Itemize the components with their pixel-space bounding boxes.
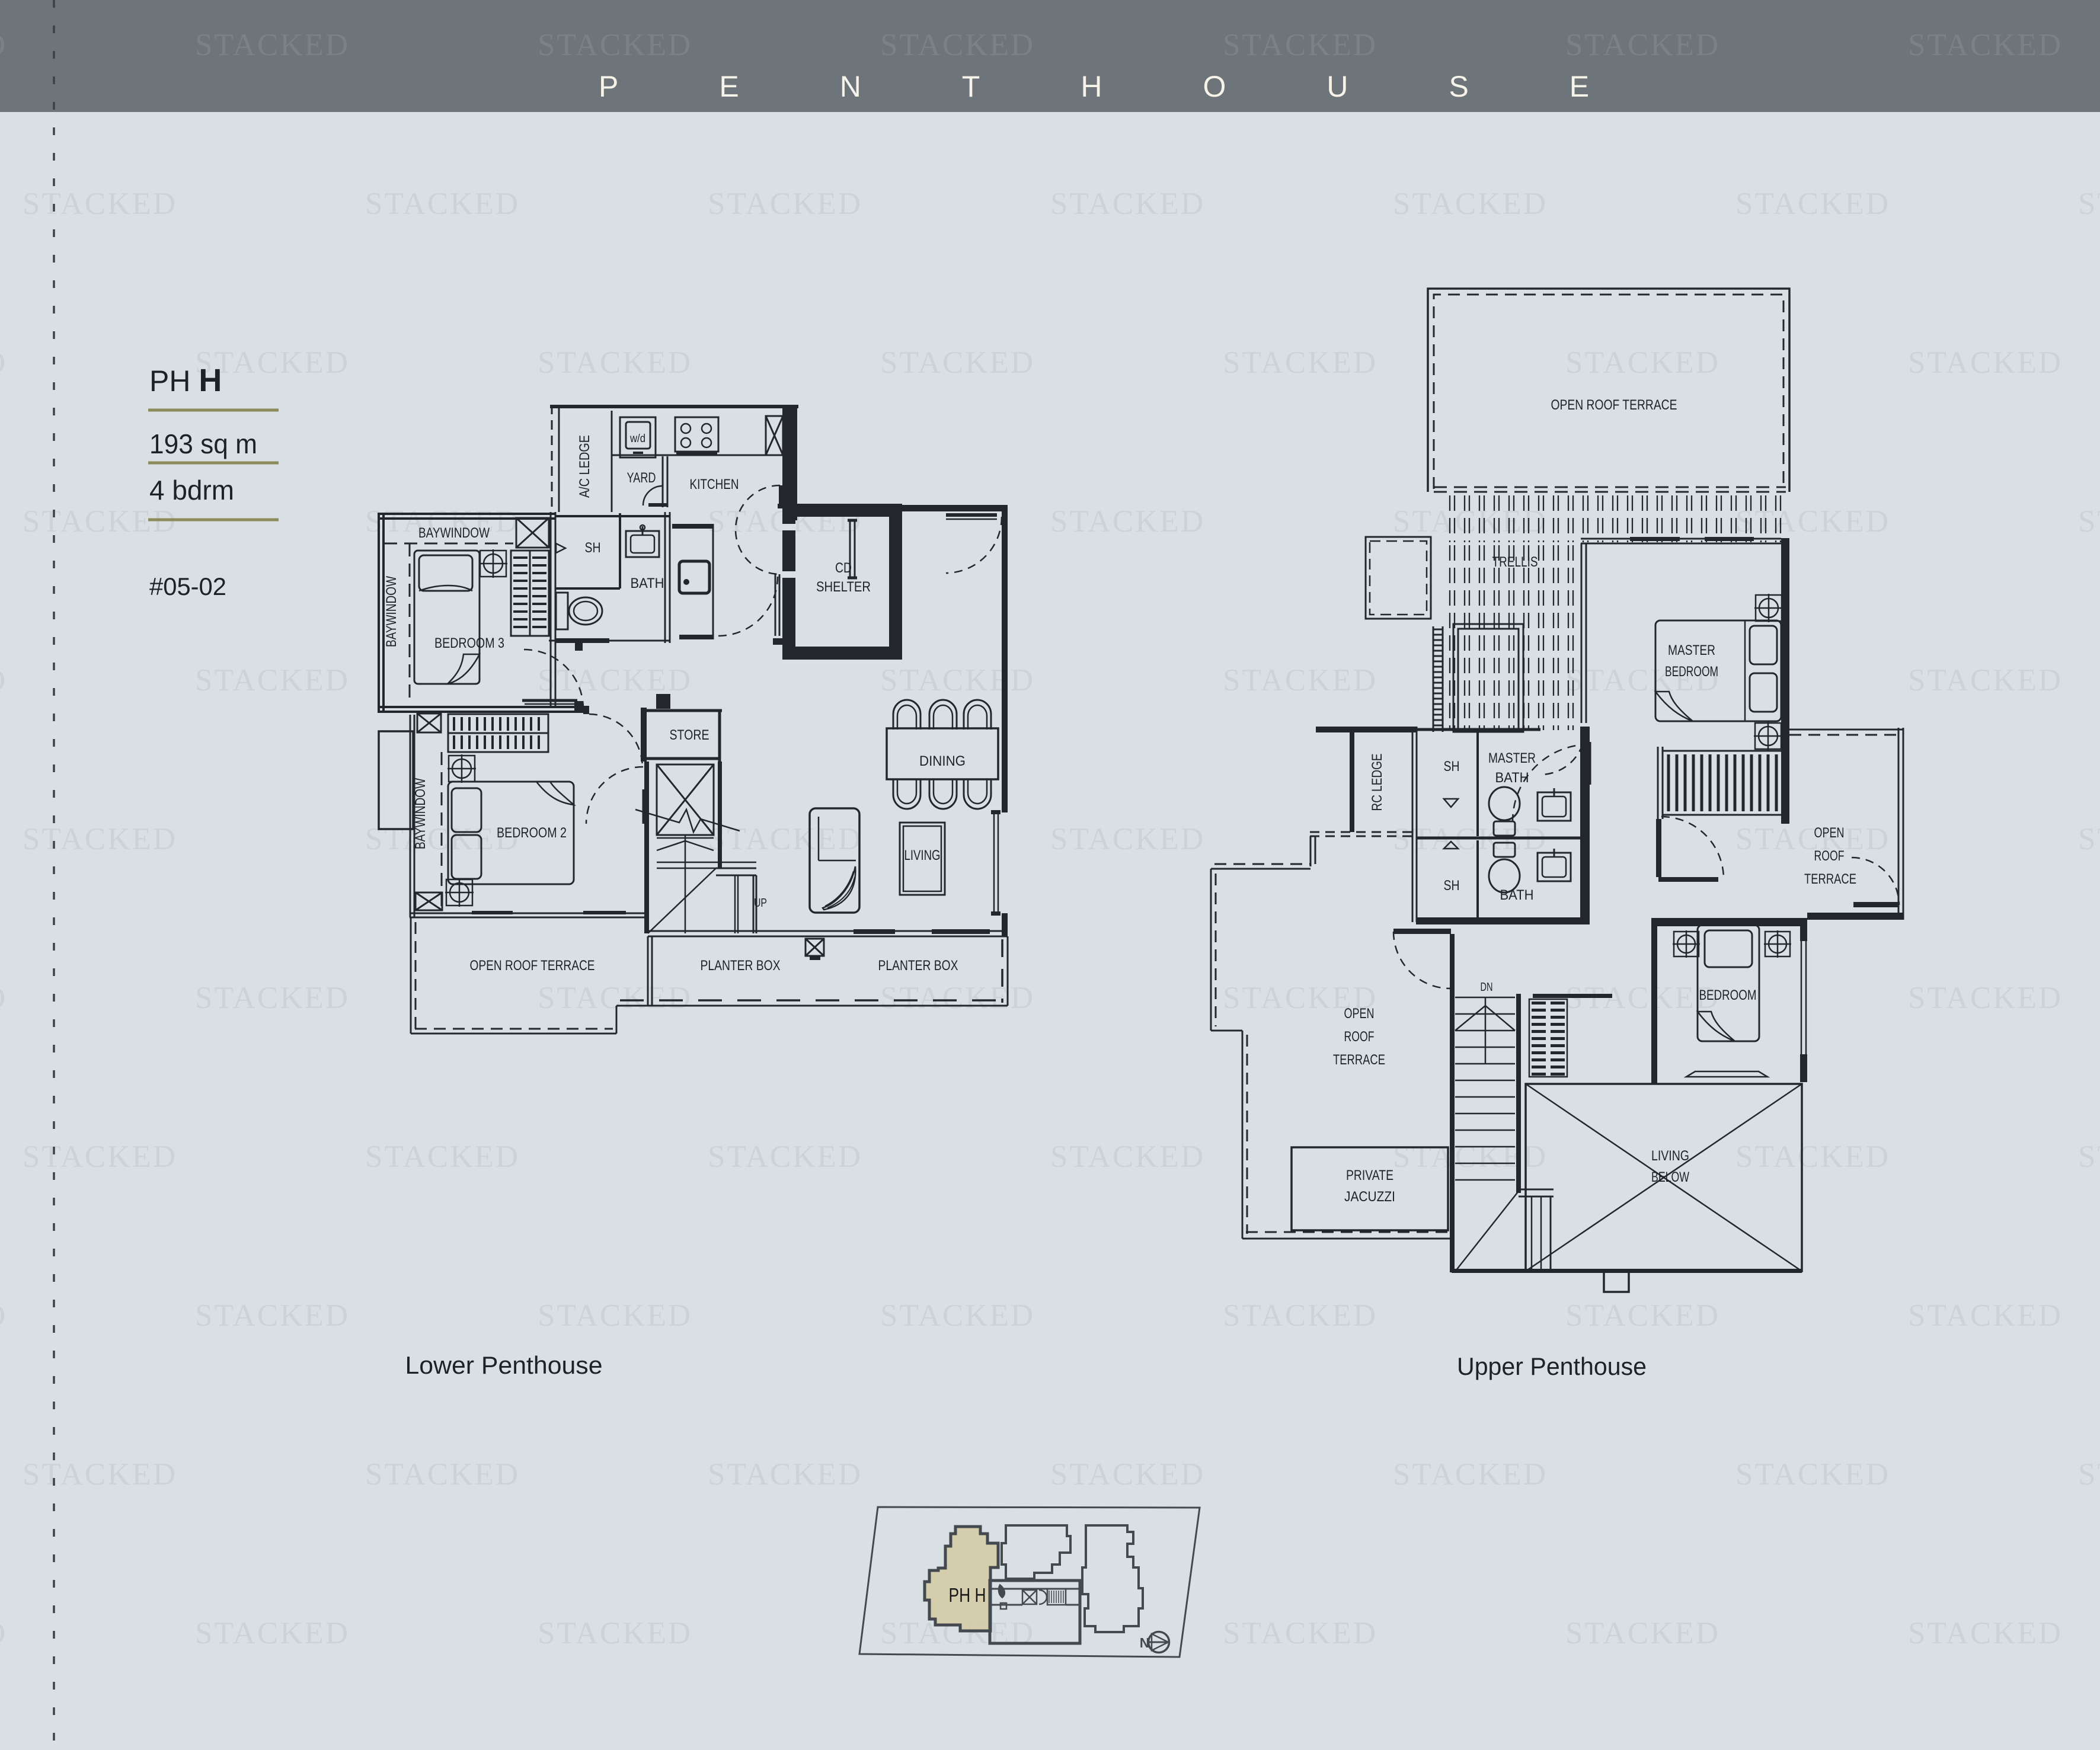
svg-text:PRIVATE: PRIVATE <box>1346 1167 1393 1183</box>
svg-text:A/C LEDGE: A/C LEDGE <box>577 435 593 498</box>
svg-text:SH: SH <box>585 540 601 556</box>
svg-text:STACKED: STACKED <box>1908 981 2063 1015</box>
svg-text:ROOF: ROOF <box>1344 1029 1375 1045</box>
svg-text:193 sq m: 193 sq m <box>149 428 257 459</box>
svg-text:STACKED: STACKED <box>1735 187 1890 221</box>
svg-text:LIVING: LIVING <box>1651 1148 1689 1164</box>
svg-text:STACKED: STACKED <box>1735 1457 1890 1492</box>
svg-text:PLANTER BOX: PLANTER BOX <box>701 958 781 974</box>
svg-text:STACKED: STACKED <box>1908 1616 2063 1650</box>
svg-text:MASTER: MASTER <box>1488 750 1536 766</box>
svg-text:STACKED: STACKED <box>1223 345 1377 380</box>
svg-text:STACKED: STACKED <box>708 187 862 221</box>
svg-text:OPEN: OPEN <box>1344 1006 1375 1022</box>
svg-text:MASTER: MASTER <box>1668 642 1715 658</box>
svg-text:STACKED: STACKED <box>0 663 7 698</box>
svg-text:STACKED: STACKED <box>365 187 520 221</box>
svg-text:STACKED: STACKED <box>538 1616 692 1650</box>
svg-text:STACKED: STACKED <box>880 1298 1035 1333</box>
svg-text:BATH: BATH <box>1495 770 1529 786</box>
svg-text:STACKED: STACKED <box>195 1298 350 1333</box>
svg-text:STACKED: STACKED <box>538 981 692 1015</box>
svg-text:KITCHEN: KITCHEN <box>690 476 739 492</box>
svg-text:STACKED: STACKED <box>708 1140 862 1174</box>
svg-text:STACKED: STACKED <box>1735 504 1890 539</box>
svg-text:SH: SH <box>1444 759 1460 775</box>
svg-text:Upper Penthouse: Upper Penthouse <box>1457 1352 1647 1380</box>
svg-text:STACKED: STACKED <box>1223 1616 1377 1650</box>
svg-text:STACKED: STACKED <box>195 28 350 62</box>
svg-text:TRELLIS: TRELLIS <box>1492 554 1538 570</box>
svg-text:N: N <box>1140 1635 1150 1650</box>
svg-text:STACKED: STACKED <box>1223 28 1377 62</box>
svg-text:STACKED: STACKED <box>365 1457 520 1492</box>
svg-text:STACKED: STACKED <box>0 981 7 1015</box>
svg-text:BAYWINDOW: BAYWINDOW <box>383 576 399 647</box>
svg-text:4 bdrm: 4 bdrm <box>149 475 234 506</box>
svg-text:BELOW: BELOW <box>1651 1169 1689 1185</box>
svg-text:STACKED: STACKED <box>0 1616 7 1650</box>
svg-text:STACKED: STACKED <box>2078 1457 2100 1492</box>
svg-text:STACKED: STACKED <box>1050 822 1205 856</box>
svg-text:STACKED: STACKED <box>195 981 350 1015</box>
svg-text:STACKED: STACKED <box>1735 1140 1890 1174</box>
svg-text:STACKED: STACKED <box>2078 1140 2100 1174</box>
svg-text:STACKED: STACKED <box>23 504 177 539</box>
svg-text:STACKED: STACKED <box>2078 187 2100 221</box>
svg-text:STACKED: STACKED <box>708 1457 862 1492</box>
svg-text:STACKED: STACKED <box>538 1298 692 1333</box>
svg-text:STACKED: STACKED <box>880 981 1035 1015</box>
svg-text:STACKED: STACKED <box>708 822 862 856</box>
svg-text:YARD: YARD <box>627 470 656 486</box>
svg-text:STACKED: STACKED <box>1050 1457 1205 1492</box>
svg-text:OPEN ROOF TERRACE: OPEN ROOF TERRACE <box>1551 397 1677 413</box>
svg-text:SH: SH <box>1444 878 1460 894</box>
svg-text:BEDROOM: BEDROOM <box>1665 664 1718 680</box>
svg-text:STACKED: STACKED <box>538 663 692 698</box>
svg-text:STACKED: STACKED <box>23 822 177 856</box>
svg-text:STACKED: STACKED <box>1223 1298 1377 1333</box>
svg-text:STACKED: STACKED <box>365 1140 520 1174</box>
svg-text:PH H: PH H <box>949 1584 986 1606</box>
svg-text:DINING: DINING <box>919 753 966 769</box>
svg-text:OPEN: OPEN <box>1814 825 1845 841</box>
svg-text:w/d: w/d <box>629 433 645 445</box>
svg-text:Lower Penthouse: Lower Penthouse <box>405 1351 603 1379</box>
svg-text:STACKED: STACKED <box>1565 28 1720 62</box>
svg-text:STACKED: STACKED <box>880 663 1035 698</box>
svg-text:UP: UP <box>754 897 767 910</box>
svg-text:JACUZZI: JACUZZI <box>1344 1189 1395 1205</box>
svg-text:PENTHOUSE: PENTHOUSE <box>599 70 1690 103</box>
svg-text:STACKED: STACKED <box>1393 1457 1548 1492</box>
svg-text:BATH: BATH <box>1500 887 1534 903</box>
svg-text:STACKED: STACKED <box>1565 345 1720 380</box>
svg-text:STACKED: STACKED <box>1393 187 1548 221</box>
svg-text:STACKED: STACKED <box>1735 822 1890 856</box>
svg-text:TERRACE: TERRACE <box>1333 1052 1385 1068</box>
svg-text:STACKED: STACKED <box>2078 822 2100 856</box>
svg-text:STACKED: STACKED <box>0 345 7 380</box>
svg-text:STACKED: STACKED <box>1050 504 1205 539</box>
svg-text:STACKED: STACKED <box>0 28 7 62</box>
svg-text:PH H: PH H <box>149 363 222 398</box>
svg-text:RC LEDGE: RC LEDGE <box>1369 754 1385 811</box>
svg-text:STACKED: STACKED <box>2078 504 2100 539</box>
svg-text:STACKED: STACKED <box>1565 1298 1720 1333</box>
svg-text:STACKED: STACKED <box>538 28 692 62</box>
svg-text:STACKED: STACKED <box>1908 663 2063 698</box>
svg-text:BEDROOM 3: BEDROOM 3 <box>434 635 504 651</box>
svg-text:STACKED: STACKED <box>195 1616 350 1650</box>
svg-text:STACKED: STACKED <box>1223 663 1377 698</box>
svg-text:STACKED: STACKED <box>538 345 692 380</box>
svg-text:SHELTER: SHELTER <box>816 579 871 595</box>
svg-text:STACKED: STACKED <box>1908 1298 2063 1333</box>
svg-text:STACKED: STACKED <box>1908 345 2063 380</box>
svg-text:CD: CD <box>835 560 852 576</box>
svg-text:BEDROOM: BEDROOM <box>1699 987 1757 1003</box>
svg-text:STACKED: STACKED <box>0 1298 7 1333</box>
svg-text:STORE: STORE <box>670 727 709 743</box>
svg-text:STACKED: STACKED <box>23 1457 177 1492</box>
svg-text:STACKED: STACKED <box>880 345 1035 380</box>
svg-text:STACKED: STACKED <box>23 1140 177 1174</box>
svg-text:#05-02: #05-02 <box>149 572 226 600</box>
svg-text:STACKED: STACKED <box>1050 1140 1205 1174</box>
svg-text:STACKED: STACKED <box>1908 28 2063 62</box>
svg-text:STACKED: STACKED <box>880 28 1035 62</box>
svg-text:DN: DN <box>1481 981 1493 994</box>
svg-text:BAYWINDOW: BAYWINDOW <box>418 525 490 541</box>
svg-text:LIVING: LIVING <box>904 847 941 863</box>
svg-text:STACKED: STACKED <box>195 663 350 698</box>
svg-text:OPEN ROOF TERRACE: OPEN ROOF TERRACE <box>470 958 595 974</box>
svg-text:BEDROOM 2: BEDROOM 2 <box>497 825 567 841</box>
svg-text:BATH: BATH <box>631 575 664 591</box>
svg-text:TERRACE: TERRACE <box>1804 871 1856 887</box>
svg-text:STACKED: STACKED <box>23 187 177 221</box>
svg-text:STACKED: STACKED <box>1050 187 1205 221</box>
svg-text:PLANTER BOX: PLANTER BOX <box>878 958 958 974</box>
svg-text:ROOF: ROOF <box>1814 848 1845 864</box>
svg-text:STACKED: STACKED <box>1393 1140 1548 1174</box>
svg-text:STACKED: STACKED <box>1565 1616 1720 1650</box>
